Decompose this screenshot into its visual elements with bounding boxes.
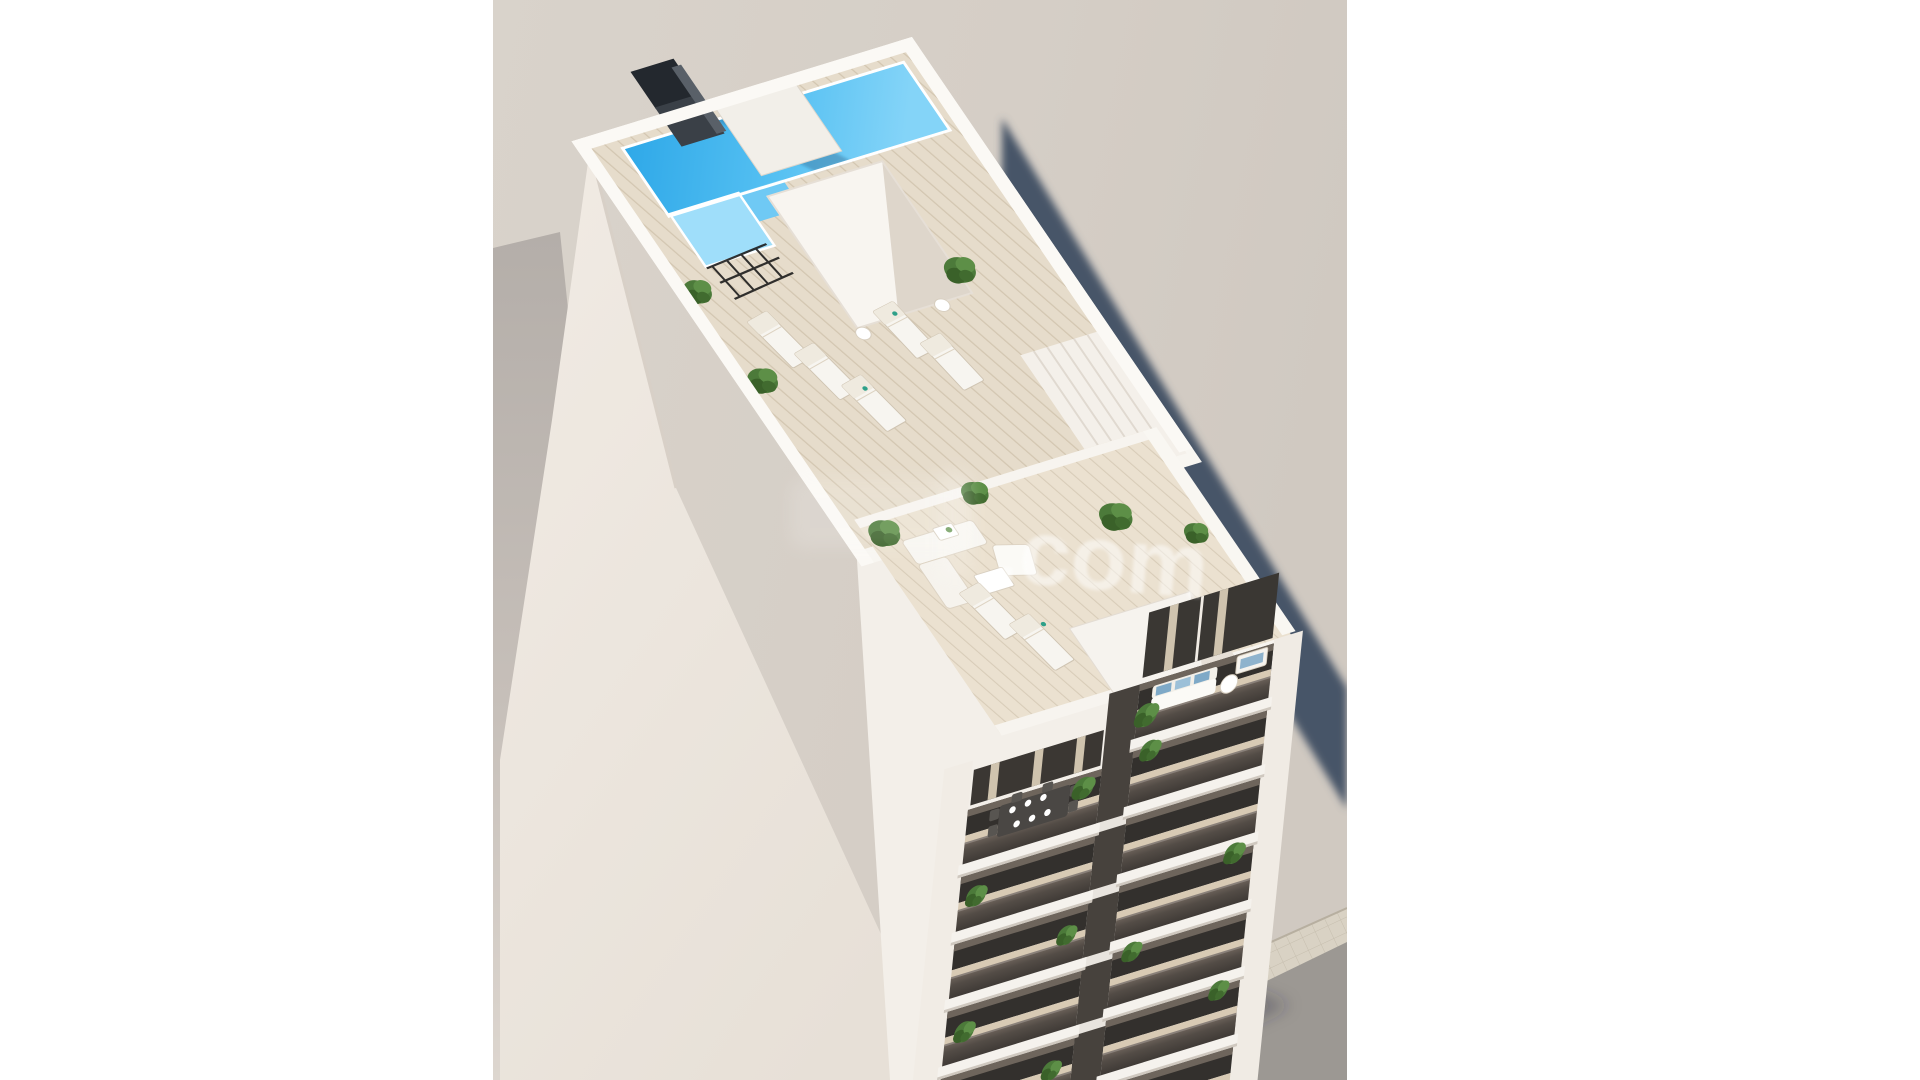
watermark-text: .com [990,498,1213,618]
right-white-margin [1347,0,1920,1080]
property-render-photo: .com [493,0,1347,1080]
render-canvas: .com [0,0,1920,1080]
render-scene: .com [493,0,1347,1080]
left-white-margin [0,0,493,1080]
watermark-blur-letter [938,470,972,580]
